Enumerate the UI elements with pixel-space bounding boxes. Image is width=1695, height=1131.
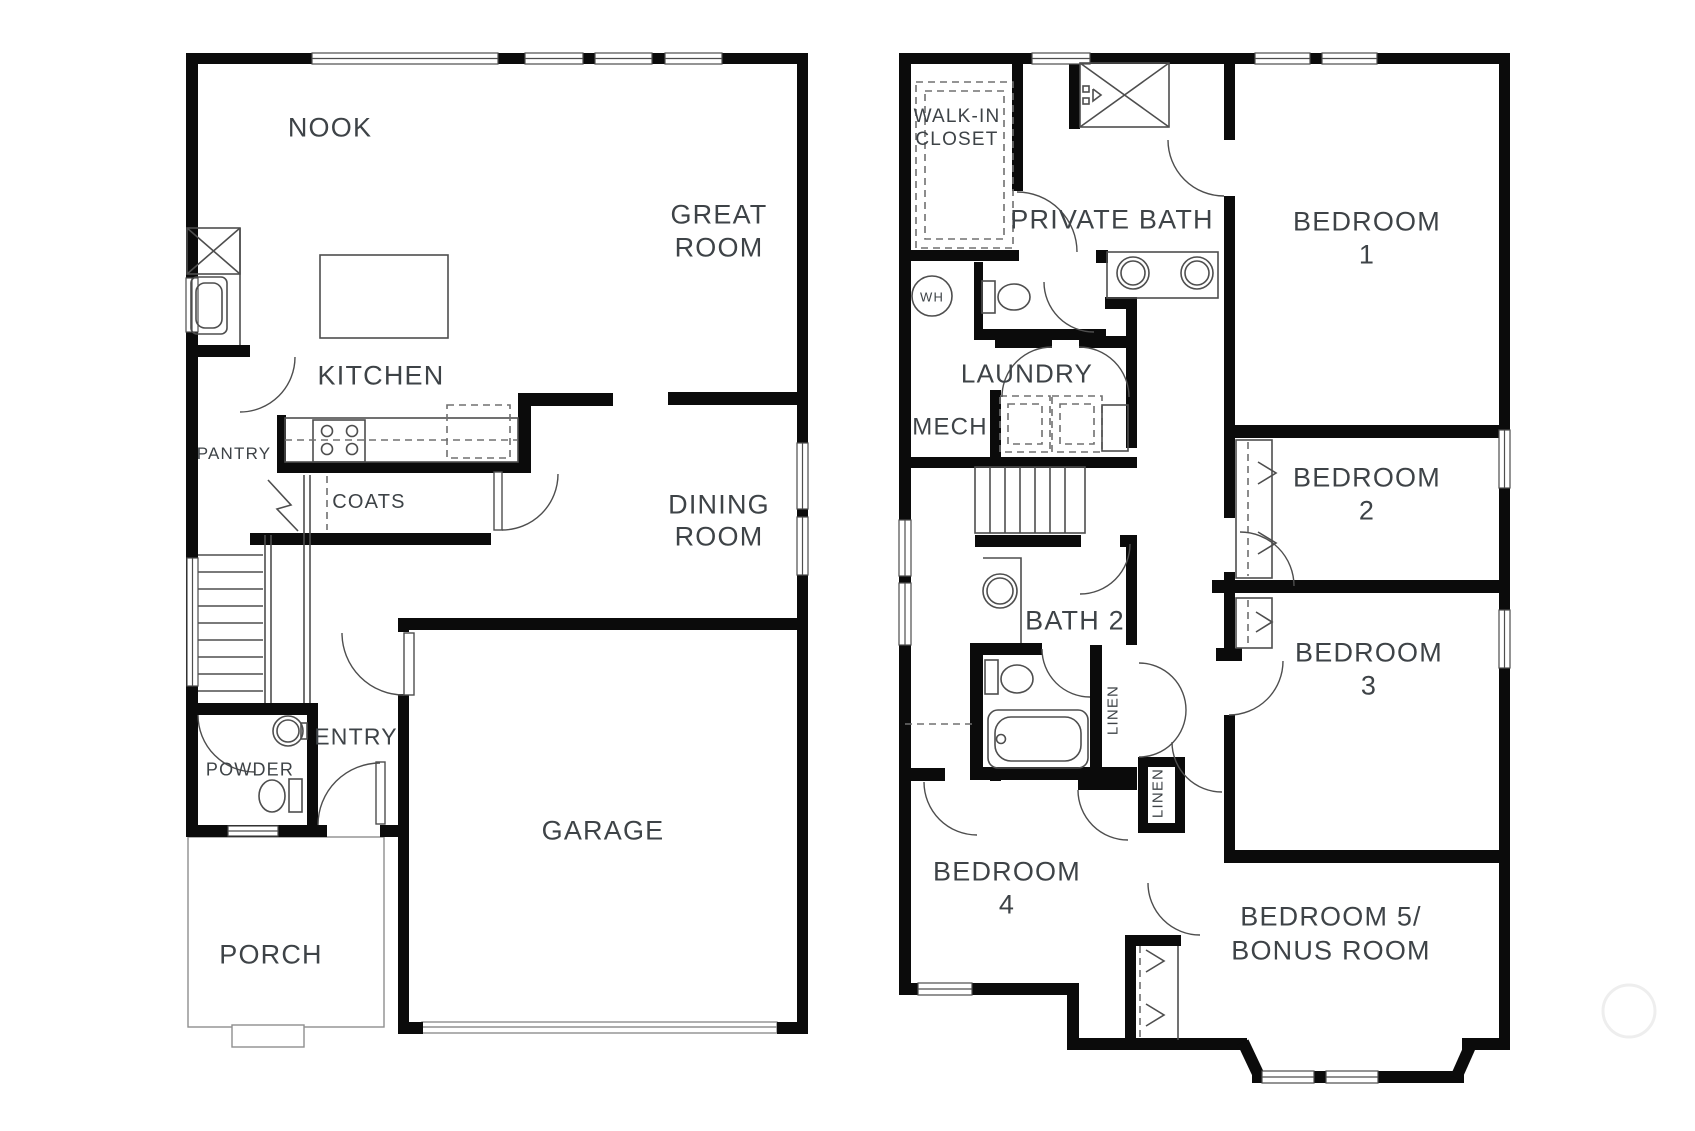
linen1-door-upper xyxy=(1139,663,1186,710)
bedroom3-door xyxy=(1229,661,1283,715)
garage-entry-door-leaf xyxy=(404,633,414,695)
stove xyxy=(313,420,365,462)
floorplan-page: NOOKGREATROOMKITCHENPANTRYCOATSDININGROO… xyxy=(0,0,1695,1131)
bedroom2-closet xyxy=(1236,440,1276,578)
pantry-door xyxy=(240,357,295,412)
room-label-linen-2: LINEN xyxy=(1149,768,1166,818)
room-label-mech: MECH xyxy=(912,414,987,441)
room-label-powder: POWDER xyxy=(206,759,294,779)
room-label-bedroom-5-bonus: BEDROOM 5/BONUS ROOM xyxy=(1231,902,1431,966)
room-label-porch: PORCH xyxy=(219,940,323,970)
room-label-laundry: LAUNDRY xyxy=(961,358,1093,388)
garage-entry-door xyxy=(342,633,404,695)
room-label-entry: ENTRY xyxy=(314,723,398,749)
powder-sink xyxy=(273,716,307,746)
bedroom1-door xyxy=(1168,140,1224,196)
second-floor-plan: WALK-INCLOSETPRIVATE BATHBEDROOM1WHLAUND… xyxy=(899,53,1510,1083)
room-label-bedroom-3: BEDROOM3 xyxy=(1295,638,1443,701)
bath2-toilet-door xyxy=(1042,649,1090,697)
private-toilet-door xyxy=(1044,282,1094,332)
room-label-nook: NOOK xyxy=(288,113,372,143)
bath2-toilet xyxy=(985,660,1033,694)
room-label-bedroom-1: BEDROOM1 xyxy=(1293,207,1441,270)
room-label-private-bath: PRIVATE BATH xyxy=(1010,205,1213,235)
front-door xyxy=(318,763,380,825)
room-label-walk-in-closet: WALK-INCLOSET xyxy=(914,106,1001,150)
powder-toilet xyxy=(259,779,302,812)
bedroom5-closet xyxy=(1140,946,1178,1040)
bathtub xyxy=(988,710,1088,768)
coats-door xyxy=(502,474,558,530)
room-label-dining-room: DININGROOM xyxy=(668,490,770,552)
first-floor-plan: NOOKGREATROOMKITCHENPANTRYCOATSDININGROO… xyxy=(186,53,808,1047)
porch-step xyxy=(232,1025,304,1047)
first-floor-doors xyxy=(198,357,558,825)
bath2-door xyxy=(1080,544,1130,594)
bedroom3-closet xyxy=(1236,598,1272,648)
bonus-hall-door xyxy=(1078,790,1128,840)
bedroom5-door xyxy=(1148,883,1200,935)
watermark-circle xyxy=(1603,985,1655,1037)
double-vanity xyxy=(1107,252,1218,298)
private-toilet xyxy=(982,281,1030,313)
room-label-linen-1: LINEN xyxy=(1104,685,1121,735)
room-label-coats: COATS xyxy=(332,491,405,513)
shower xyxy=(1080,63,1169,127)
coats-closet-symbols xyxy=(268,476,327,531)
room-label-kitchen: KITCHEN xyxy=(318,361,445,391)
bath2-sink xyxy=(983,558,1021,643)
front-door-leaf xyxy=(376,762,385,824)
refrigerator xyxy=(447,405,510,458)
stairs-first-floor xyxy=(198,475,310,703)
room-label-great-room: GREATROOM xyxy=(670,200,767,263)
bedroom4-door xyxy=(924,782,977,835)
kitchen-island xyxy=(320,255,448,338)
room-label-bedroom-4: BEDROOM4 xyxy=(933,857,1081,920)
linen1-door-lower xyxy=(1139,710,1186,757)
coats-door-leaf xyxy=(494,472,502,530)
room-label-bath-2: BATH 2 xyxy=(1025,606,1125,636)
room-label-garage: GARAGE xyxy=(542,816,665,846)
label-water-heater: WH xyxy=(920,290,944,305)
stairs-second-floor xyxy=(975,467,1085,533)
room-label-bedroom-2: BEDROOM2 xyxy=(1293,463,1441,526)
floorplan-canvas: NOOKGREATROOMKITCHENPANTRYCOATSDININGROO… xyxy=(0,0,1695,1131)
washer-dryer xyxy=(1000,396,1128,452)
room-label-pantry: PANTRY xyxy=(197,444,272,463)
